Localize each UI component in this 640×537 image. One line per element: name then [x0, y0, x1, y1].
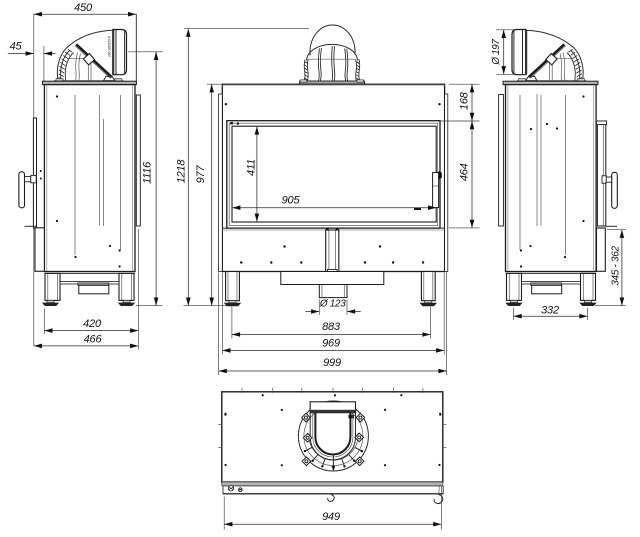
svg-text:1218: 1218	[175, 159, 187, 184]
svg-text:905: 905	[282, 195, 301, 207]
svg-text:168: 168	[458, 91, 470, 110]
svg-text:345 - 362: 345 - 362	[610, 245, 621, 285]
svg-text:999: 999	[323, 357, 341, 369]
svg-text:1116: 1116	[141, 161, 153, 184]
svg-text:420: 420	[83, 318, 102, 330]
svg-text:Ø 123: Ø 123	[319, 298, 346, 309]
svg-text:450: 450	[74, 2, 93, 14]
svg-text:464: 464	[458, 163, 470, 181]
svg-text:Ø 197: Ø 197	[491, 39, 502, 66]
svg-text:411: 411	[245, 159, 257, 176]
svg-text:160-180/150-K: 160-180/150-K	[107, 35, 111, 57]
svg-text:332: 332	[541, 305, 559, 317]
svg-text:883: 883	[322, 321, 341, 333]
svg-text:466: 466	[84, 334, 103, 346]
svg-text:969: 969	[322, 337, 340, 349]
svg-text:45: 45	[10, 41, 23, 53]
svg-text:977: 977	[195, 165, 207, 184]
svg-text:949: 949	[322, 511, 340, 523]
